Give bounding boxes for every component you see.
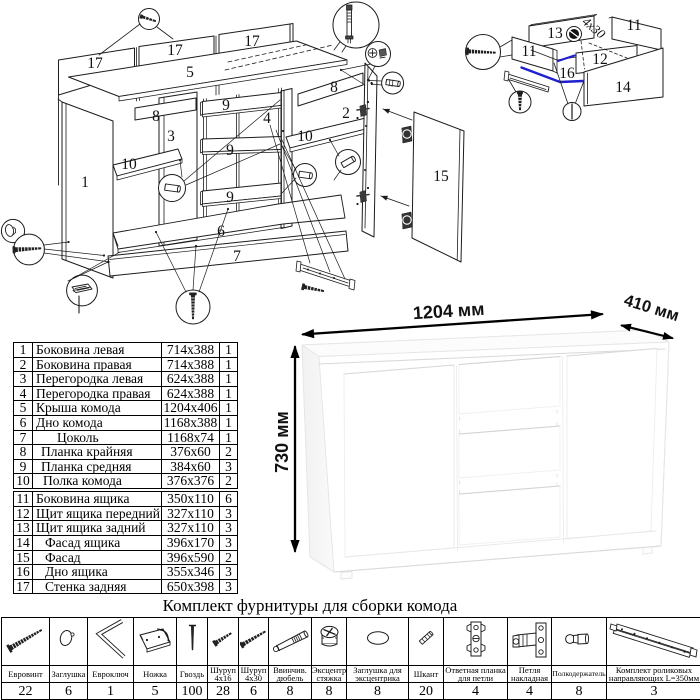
svg-text:11: 11 — [522, 43, 537, 60]
svg-text:9: 9 — [226, 189, 234, 206]
svg-text:1204 мм: 1204 мм — [412, 299, 485, 323]
svg-text:6: 6 — [217, 223, 225, 240]
svg-text:8: 8 — [152, 108, 160, 125]
svg-text:4: 4 — [263, 110, 271, 127]
svg-text:17: 17 — [87, 55, 103, 72]
svg-text:3: 3 — [167, 128, 175, 145]
svg-text:5: 5 — [186, 64, 194, 81]
svg-text:13: 13 — [547, 25, 563, 42]
svg-text:9: 9 — [226, 142, 234, 159]
svg-text:14: 14 — [615, 79, 631, 96]
svg-text:16: 16 — [559, 65, 575, 82]
svg-text:11: 11 — [627, 17, 642, 34]
svg-text:17: 17 — [244, 33, 260, 50]
svg-text:10: 10 — [121, 156, 137, 173]
svg-text:730 мм: 730 мм — [272, 411, 292, 473]
svg-text:9: 9 — [222, 97, 230, 114]
svg-text:10: 10 — [297, 128, 313, 145]
svg-text:15: 15 — [433, 168, 449, 185]
svg-text:12: 12 — [592, 51, 608, 68]
svg-text:2: 2 — [342, 105, 350, 122]
svg-text:1: 1 — [81, 174, 89, 191]
svg-text:8: 8 — [330, 79, 338, 96]
svg-text:7: 7 — [233, 248, 241, 265]
svg-text:17: 17 — [167, 42, 183, 59]
svg-text:410 мм: 410 мм — [622, 291, 681, 325]
